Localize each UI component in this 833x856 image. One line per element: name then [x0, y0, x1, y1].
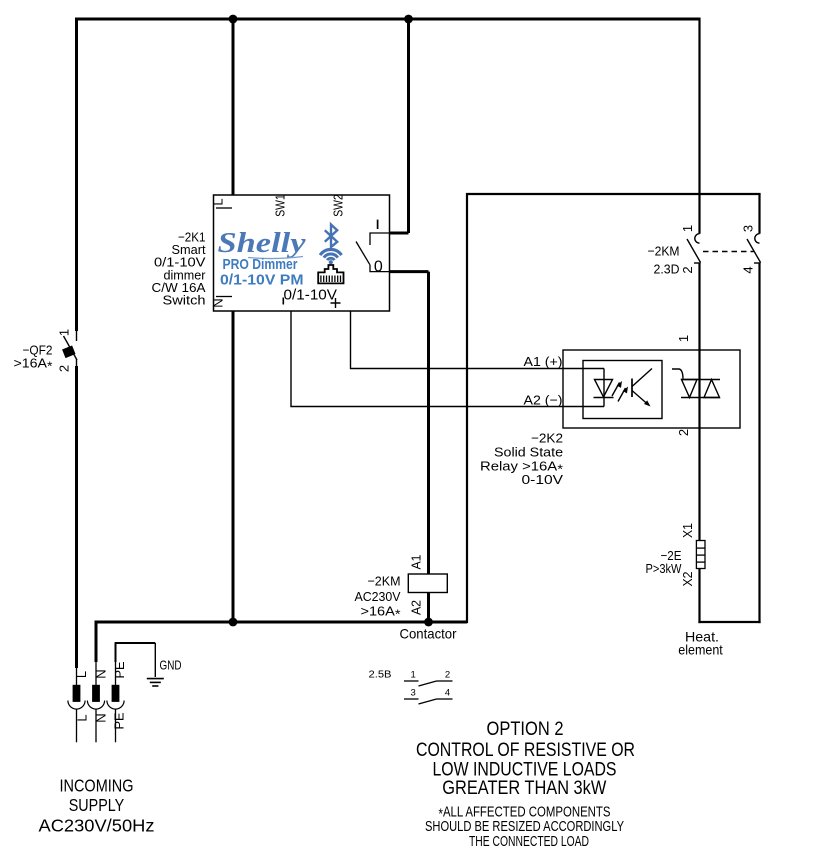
svg-text:1: 1 — [680, 225, 695, 232]
svg-text:PE: PE — [112, 712, 127, 729]
svg-text:X1: X1 — [680, 523, 695, 538]
svg-text:SW2: SW2 — [331, 194, 346, 217]
svg-text:2: 2 — [445, 670, 450, 681]
svg-text:AC230V: AC230V — [355, 589, 401, 604]
svg-text:−2KM: −2KM — [648, 244, 680, 259]
svg-text:GREATER THAN 3kW: GREATER THAN 3kW — [442, 777, 606, 799]
svg-text:Shelly: Shelly — [218, 228, 307, 259]
svg-text:Contactor: Contactor — [400, 626, 457, 642]
svg-text:Solid State: Solid State — [494, 445, 563, 460]
svg-text:element: element — [678, 642, 723, 658]
svg-text:2: 2 — [680, 266, 695, 273]
svg-text:−2KM: −2KM — [368, 574, 401, 589]
svg-text:1: 1 — [57, 329, 72, 336]
svg-text:0/1-10V: 0/1-10V — [284, 287, 338, 304]
svg-text:2.5B: 2.5B — [369, 670, 392, 681]
svg-text:A2: A2 — [409, 600, 424, 615]
svg-text:2.3D: 2.3D — [654, 262, 680, 277]
svg-text:2: 2 — [57, 365, 72, 372]
svg-text:A1 (+): A1 (+) — [524, 354, 563, 369]
svg-text:PRO Dimmer: PRO Dimmer — [223, 256, 298, 273]
svg-text:1: 1 — [411, 670, 416, 681]
svg-text:N: N — [94, 669, 109, 678]
svg-text:X2: X2 — [680, 572, 695, 587]
svg-text:INCOMING: INCOMING — [60, 776, 134, 796]
svg-text:2: 2 — [676, 429, 691, 436]
svg-text:SHOULD BE RESIZED ACCORDINGLY: SHOULD BE RESIZED ACCORDINGLY — [425, 819, 624, 835]
svg-text:4: 4 — [741, 266, 756, 273]
svg-text:SUPPLY: SUPPLY — [69, 795, 125, 815]
svg-text:L: L — [75, 714, 90, 721]
svg-text:1: 1 — [676, 335, 691, 342]
svg-text:OPTION 2: OPTION 2 — [487, 718, 564, 740]
svg-text:0: 0 — [374, 259, 383, 276]
svg-text:3: 3 — [741, 225, 756, 232]
svg-text:0-10V: 0-10V — [522, 472, 564, 487]
svg-text:P>3kW: P>3kW — [646, 561, 683, 576]
svg-text:GND: GND — [160, 658, 182, 673]
svg-text:A1: A1 — [409, 555, 424, 570]
svg-text:SW1: SW1 — [273, 194, 288, 217]
svg-text:3: 3 — [411, 688, 416, 699]
svg-text:Switch: Switch — [163, 293, 206, 308]
svg-text:L: L — [211, 198, 226, 205]
svg-text:−2K2: −2K2 — [531, 431, 563, 446]
svg-text:4: 4 — [445, 688, 450, 699]
svg-text:N: N — [211, 298, 226, 307]
svg-text:L: L — [74, 671, 89, 678]
svg-text:PE: PE — [112, 661, 127, 678]
svg-text:AC230V/50Hz: AC230V/50Hz — [39, 816, 155, 836]
svg-text:A2 (−): A2 (−) — [524, 393, 563, 408]
svg-text:N: N — [94, 713, 109, 722]
svg-text:THE CONNECTED LOAD: THE CONNECTED LOAD — [469, 834, 589, 850]
